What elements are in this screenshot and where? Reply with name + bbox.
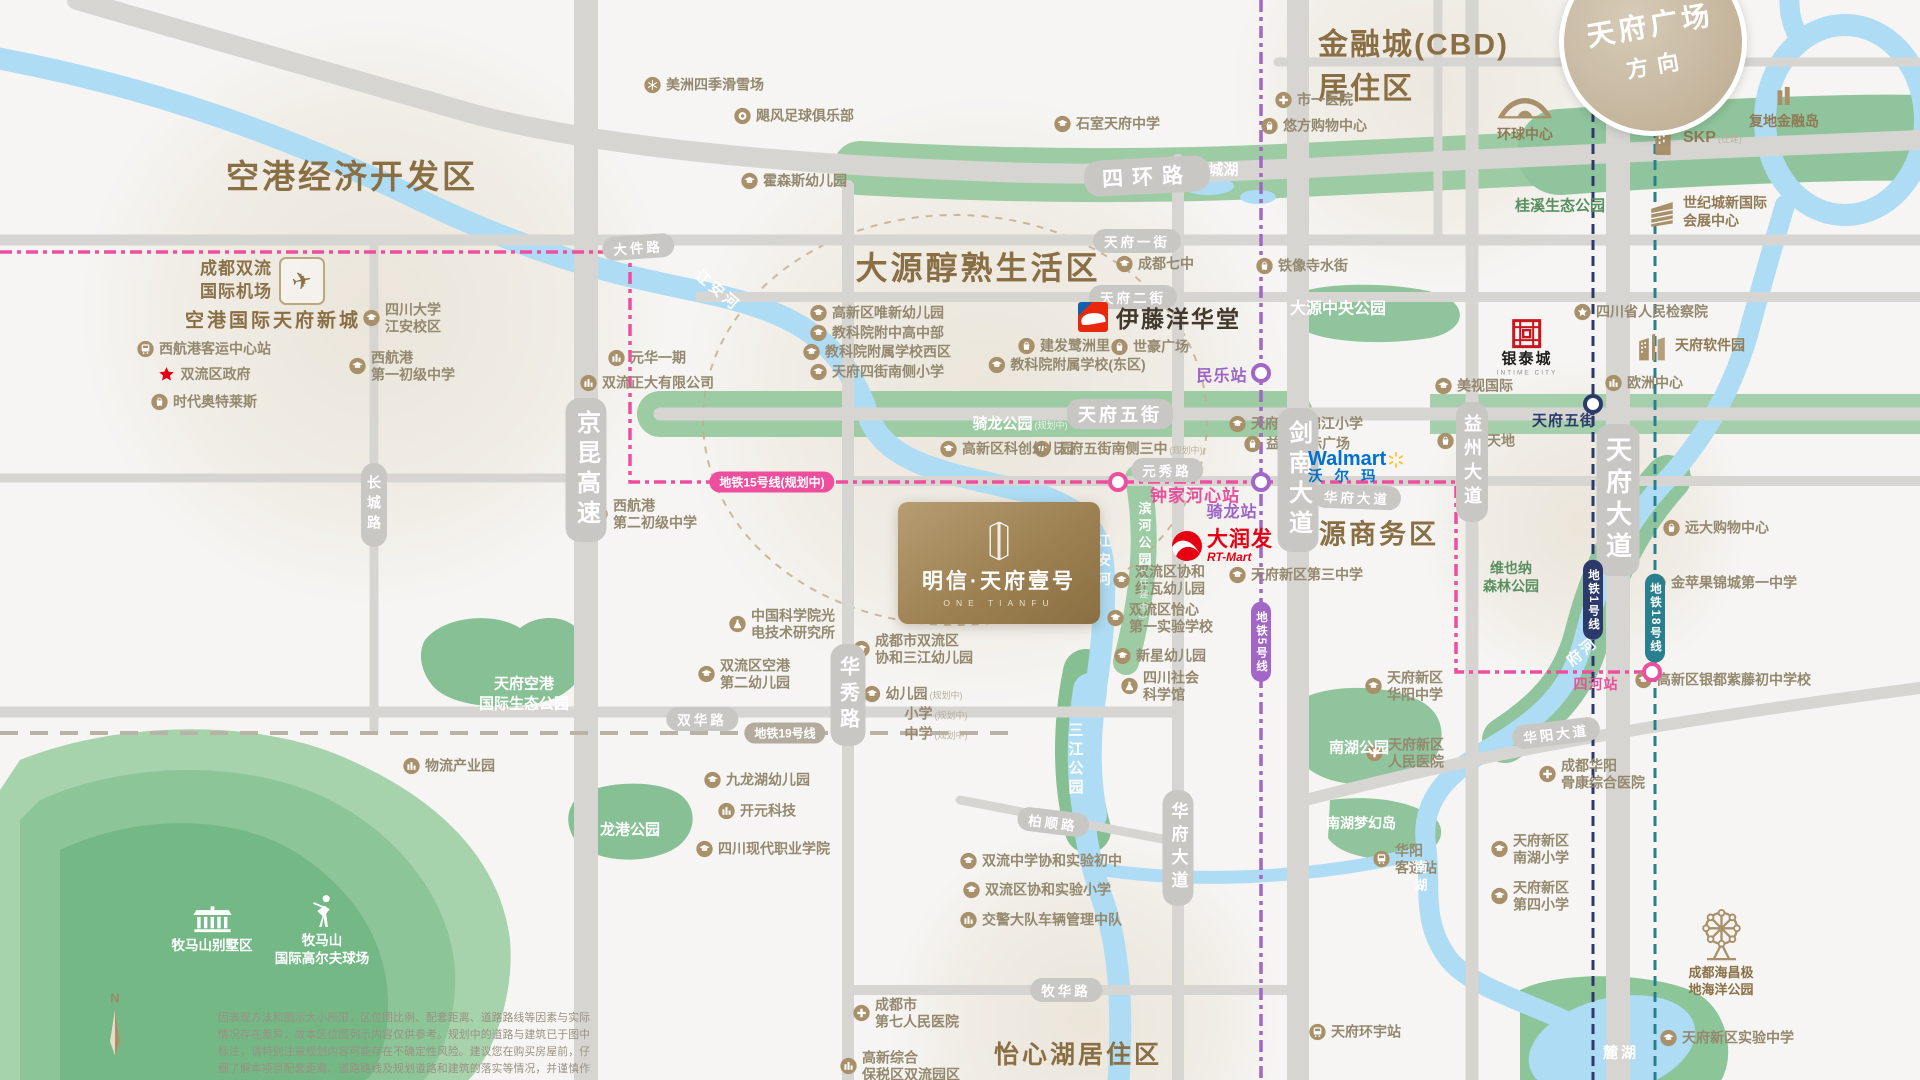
bldg-icon bbox=[608, 350, 625, 367]
poi-xhg-bus-center: 西航港客运中心站 bbox=[137, 341, 271, 358]
poi-social-science-hall: 四川社会科学馆 bbox=[1121, 669, 1199, 702]
road-tianfu-ave: 天府大道 bbox=[1597, 424, 1640, 576]
logo-intime-city: 银泰城INTIME CITY bbox=[1497, 319, 1558, 378]
ball-icon bbox=[734, 108, 751, 125]
label-binhe-park: 滨河公园(在建中) bbox=[1135, 502, 1154, 623]
road-tianfu-1st: 天府一街 bbox=[1093, 229, 1181, 253]
road-sihuan: 四环路 bbox=[1083, 155, 1211, 198]
road-yizhou-ave: 益州大道 bbox=[1456, 402, 1488, 522]
poi-gukang-hospital: 成都华阳骨康综合医院 bbox=[1539, 757, 1645, 790]
school-icon bbox=[1365, 678, 1382, 695]
poi-konggang-kg2: 双流区空港第二幼儿园 bbox=[698, 657, 790, 690]
poi-chengdu-no7: 成都七中 bbox=[1116, 256, 1194, 273]
poi-shuangliu-gov: 双流区政府 bbox=[158, 365, 251, 383]
intime-grid-icon bbox=[1512, 319, 1542, 349]
road-huafu-h: 华府大道 bbox=[1313, 483, 1402, 510]
road-huayang-ave: 华阳大道 bbox=[1511, 716, 1601, 751]
school-icon bbox=[810, 364, 827, 381]
station-qilong-dot bbox=[1251, 472, 1271, 492]
poi-haichang-ocean-park: 成都海昌极地海洋公园 bbox=[1688, 905, 1753, 999]
school-icon bbox=[810, 325, 827, 342]
poi-tfx-no3-middle: 天府新区第三中学 bbox=[1229, 567, 1363, 584]
poi-jky-high: 教科院附中高中部 bbox=[810, 325, 944, 342]
flask-icon bbox=[729, 616, 746, 633]
ito-yokado-logo-icon bbox=[1078, 302, 1108, 332]
poi-global-center: 环球中心 bbox=[1496, 96, 1554, 144]
school-icon bbox=[696, 841, 713, 858]
metro-line5-label: 地铁5号线 bbox=[1251, 602, 1271, 682]
arch-icon bbox=[1496, 96, 1554, 120]
road-muhua: 牧华路 bbox=[1030, 978, 1102, 1002]
label-longgang-park: 龙港公园 bbox=[600, 820, 660, 840]
poi-jinpingguo: 金苹果锦城第一中学 bbox=[1649, 575, 1797, 592]
bldg-icon bbox=[960, 912, 977, 929]
station-tianfu5th: 天府五街 bbox=[1532, 410, 1596, 431]
ski-icon bbox=[644, 77, 661, 94]
metro-icon bbox=[1373, 851, 1390, 868]
flask-icon bbox=[1121, 678, 1138, 695]
label-guixi-park: 桂溪生态公园 bbox=[1515, 196, 1605, 216]
label-vienna-forest: 维也纳森林公园 bbox=[1483, 559, 1539, 595]
poi-yixin-exp-school: 双流区怡心第一实验学校 bbox=[1107, 601, 1213, 634]
poi-meishi-intl: 美视国际 bbox=[1435, 378, 1513, 395]
school-icon bbox=[1113, 572, 1130, 589]
bldg-icon bbox=[403, 758, 420, 775]
hospital-icon bbox=[853, 1005, 870, 1022]
poi-hongwa-kg: 双流区协和红瓦幼儿园 bbox=[1113, 563, 1205, 596]
poi-ufun-mall: 悠方购物中心 bbox=[1261, 118, 1367, 135]
logo-rt-mart: 大润发RT-Mart bbox=[1172, 529, 1273, 563]
school-icon bbox=[363, 310, 380, 327]
poi-nanhu-primary: 天府新区南湖小学 bbox=[1491, 832, 1569, 865]
poi-fudi-island: 复地金融岛 bbox=[1749, 85, 1819, 131]
metro-line15-label: 地铁15号线(规划中) bbox=[709, 472, 834, 493]
compass-north-icon: N bbox=[103, 990, 127, 1067]
road-shuanghua: 双华路 bbox=[666, 707, 738, 731]
airplane-icon: ✈ bbox=[279, 257, 325, 305]
road-dajian: 大件路 bbox=[602, 233, 675, 262]
school-icon bbox=[741, 173, 758, 190]
ferris-wheel-icon bbox=[1694, 905, 1748, 961]
poi-traffic-police: 交警大队车辆管理中队 bbox=[960, 912, 1122, 929]
area-dayuan-life: 大源醇熟生活区 bbox=[855, 243, 1100, 289]
label-jiangan-river-1: 江安河 bbox=[691, 265, 746, 316]
poi-jiulonghu-kg: 九龙湖幼儿园 bbox=[704, 772, 810, 789]
poi-xiehe-exp-junior: 双流中学协和实验初中 bbox=[960, 853, 1122, 870]
poi-yuanhua: 元华一期 bbox=[608, 350, 686, 367]
school-icon bbox=[1229, 567, 1246, 584]
label-sanjiang-park: 三江公园 bbox=[1065, 722, 1086, 798]
school-icon bbox=[1107, 610, 1124, 627]
school-icon bbox=[1116, 256, 1133, 273]
school-icon bbox=[1114, 648, 1131, 665]
poi-planned-kg: 幼儿园(规划中) bbox=[864, 686, 963, 703]
svg-text:N: N bbox=[110, 991, 119, 1006]
poi-no4-primary: 天府新区第四小学 bbox=[1491, 879, 1569, 912]
poi-kaiyuan-tech: 开元科技 bbox=[718, 803, 796, 820]
school-icon bbox=[810, 305, 827, 322]
poi-tianfu-software-park: 天府软件园 bbox=[1636, 330, 1745, 362]
poi-cas-institute: 中国科学院光电技术研究所 bbox=[729, 607, 835, 640]
school-icon bbox=[349, 358, 366, 375]
school-icon bbox=[988, 357, 1005, 374]
shop-icon bbox=[151, 394, 168, 411]
road-huaxiu: 华秀路 bbox=[831, 644, 866, 746]
poi-mumashan-villa: 牧马山别墅区 bbox=[172, 905, 253, 955]
label-qilong-park: 骑龙公园(规划中) bbox=[972, 414, 1067, 434]
label-konggang-eco-park: 天府空港国际生态公园 bbox=[479, 675, 569, 714]
area-yixinhu: 怡心湖居住区 bbox=[994, 1035, 1162, 1071]
poi-tfx-exp-middle: 天府新区实验中学 bbox=[1660, 1030, 1794, 1047]
shop-icon bbox=[1244, 436, 1261, 453]
poi-xhg-second-middle: 西航港第二初级中学 bbox=[591, 497, 697, 530]
location-map: 空港经济开发区大源醇熟生活区金融城(CBD)居住区大源商务区怡心湖居住区空港国际… bbox=[0, 0, 1920, 1080]
school-icon bbox=[704, 772, 721, 789]
metro-icon bbox=[137, 341, 154, 358]
poi-jky-west: 教科院附属学校西区 bbox=[803, 344, 951, 361]
label-nanhu-dreamland: 南湖梦幻岛 bbox=[1326, 814, 1396, 832]
school-icon bbox=[960, 853, 977, 870]
station-minle: 民乐站 bbox=[1196, 362, 1247, 386]
poi-century-expo: 世纪城新国际会展中心 bbox=[1648, 195, 1767, 230]
poi-times-outlets: 时代奥特莱斯 bbox=[151, 394, 257, 411]
starB-icon bbox=[1574, 304, 1591, 321]
poi-mumashan-golf: 牧马山国际高尔夫球场 bbox=[275, 893, 370, 967]
bldg-icon bbox=[718, 803, 735, 820]
project-card: 明信·天府壹号ONE TIANFU bbox=[898, 502, 1100, 624]
poi-logistics-park: 物流产业园 bbox=[403, 758, 495, 775]
shop-icon bbox=[1111, 339, 1128, 356]
metro-icon bbox=[1309, 1024, 1326, 1041]
folding-screen-icon bbox=[983, 519, 1015, 563]
soft-icon bbox=[1636, 330, 1668, 362]
poi-xhg-first-middle: 西航港第一初级中学 bbox=[349, 349, 455, 382]
hospital-icon bbox=[1275, 92, 1292, 109]
road-changcheng: 长城路 bbox=[361, 463, 387, 547]
poi-procuratorate: 四川省人民检察院 bbox=[1574, 304, 1708, 321]
poi-tiexiangsi: 铁像寺水街 bbox=[1256, 258, 1348, 275]
poi-weixin-kg: 高新区唯新幼儿园 bbox=[810, 305, 944, 322]
bldg-icon bbox=[1605, 375, 1622, 392]
rt-mart-swirl-icon bbox=[1172, 531, 1202, 561]
road-yuanxiu: 元秀路 bbox=[1131, 458, 1203, 482]
poi-tf4-primary: 天府四街南侧小学 bbox=[810, 364, 944, 381]
area-airport-econ: 空港经济开发区 bbox=[226, 150, 478, 198]
walmart-spark-icon bbox=[1388, 451, 1404, 467]
poi-planned-primary: 小学(规划中) bbox=[905, 706, 968, 723]
poi-football-club: 飓风足球俱乐部 bbox=[734, 108, 854, 125]
shop-icon bbox=[1261, 118, 1278, 135]
shop-icon bbox=[1256, 258, 1273, 275]
poi-horsens-kindergarten: 霍森斯幼儿园 bbox=[741, 173, 847, 190]
station-zhongjiahexin-dot bbox=[1108, 472, 1128, 492]
logo-ito-yokado: 伊藤洋华堂 bbox=[1078, 300, 1241, 334]
poi-yuanda-mall: 远大购物中心 bbox=[1663, 520, 1769, 537]
poi-jianfa: 建发鹭洲里 bbox=[1018, 338, 1110, 355]
station-minle-dot bbox=[1251, 363, 1271, 383]
poi-sc-modern-college: 四川现代职业学院 bbox=[696, 841, 830, 858]
metro-line1-label: 地铁1号线 bbox=[1583, 560, 1603, 640]
school-icon bbox=[1054, 116, 1071, 133]
label-dayuan-central-park: 大源中央公园 bbox=[1290, 300, 1386, 321]
poi-europe-center: 欧洲中心 bbox=[1605, 375, 1683, 392]
poi-no7-hospital: 成都市第七人民医院 bbox=[853, 996, 959, 1029]
road-huafu-v: 华府大道 bbox=[1163, 790, 1194, 906]
label-nanhu-park: 南湖公园 bbox=[1329, 738, 1389, 758]
school-icon bbox=[963, 882, 980, 899]
poi-scu-jiangan: 四川大学江安校区 bbox=[363, 301, 441, 334]
road-baishun: 柏顺路 bbox=[1016, 806, 1090, 839]
school-icon bbox=[1491, 888, 1508, 905]
school-icon bbox=[803, 344, 820, 361]
shop-icon bbox=[1437, 433, 1454, 450]
school-icon bbox=[698, 666, 715, 683]
road-jingkun-expwy: 京昆高速 bbox=[566, 398, 607, 542]
poi-tf-huanyu: 天府环宇站 bbox=[1309, 1024, 1401, 1041]
label-nanhu-river: 南湖 bbox=[1411, 860, 1430, 896]
poi-xinxing-kg: 新星幼儿园 bbox=[1114, 648, 1206, 665]
poi-xiehe-exp-primary: 双流区协和实验小学 bbox=[963, 882, 1111, 899]
station-sihe-dot bbox=[1642, 662, 1662, 682]
road-tianfu-5th: 天府五街 bbox=[1067, 399, 1173, 429]
logo-walmart: Walmart沃 尔 玛 bbox=[1308, 449, 1404, 485]
metro-line18-label: 地铁18号线 bbox=[1645, 574, 1665, 663]
school-icon bbox=[940, 441, 957, 458]
poi-shishi-tianfu: 石室天府中学 bbox=[1054, 116, 1160, 133]
expo-icon bbox=[1648, 196, 1676, 229]
shop-icon bbox=[1018, 338, 1035, 355]
poi-jky-east: 教科院附属学校(东区) bbox=[988, 357, 1145, 374]
bldg-icon bbox=[580, 375, 597, 392]
school-icon bbox=[1435, 378, 1452, 395]
poi-shiyi-hospital: 市一医院 bbox=[1275, 92, 1353, 109]
school-icon bbox=[864, 686, 881, 703]
label-luhu-lake: 麓湖 bbox=[1603, 1042, 1639, 1063]
area-airport-newtown: 空港国际天府新城 bbox=[185, 306, 361, 333]
poi-xiehe-sanjiang-kg: 成都市双流区协和三江幼儿园 bbox=[853, 632, 973, 665]
poi-shihao: 世豪广场 bbox=[1111, 339, 1189, 356]
school-icon bbox=[1660, 1030, 1677, 1047]
villa-icon bbox=[191, 905, 233, 934]
school-icon bbox=[1491, 841, 1508, 858]
star-icon bbox=[158, 365, 176, 383]
hospital-icon bbox=[1539, 766, 1556, 783]
poi-bonded-zone: 高新综合保税区双流园区 bbox=[840, 1049, 960, 1080]
golfer-icon bbox=[307, 893, 337, 929]
bldg-icon bbox=[840, 1058, 857, 1075]
poi-zhengda: 双流正大有限公司 bbox=[580, 375, 714, 392]
bars-icon bbox=[1775, 85, 1793, 107]
airport-label: 成都双流国际机场✈ bbox=[200, 257, 325, 305]
station-zhongjiahexin: 钟家河心站 bbox=[1150, 482, 1240, 507]
poi-planned-middle: 中学(规划中) bbox=[905, 726, 968, 743]
poi-kechuang-kg: 高新区科创幼儿园 bbox=[940, 441, 1074, 458]
station-sihe: 四河站 bbox=[1574, 674, 1619, 694]
metro-line19-label: 地铁19号线 bbox=[744, 723, 825, 744]
poi-huayang-middle: 天府新区华阳中学 bbox=[1365, 669, 1443, 702]
map-disclaimer: 因表现方法和图示大小所限，区位图比例、配套距离、道路路线等因素与实际情况存在差异… bbox=[218, 1010, 590, 1080]
school-icon bbox=[1229, 416, 1246, 433]
shop-icon bbox=[1663, 520, 1680, 537]
poi-ski-resort: 美洲四季滑雪场 bbox=[644, 77, 764, 94]
